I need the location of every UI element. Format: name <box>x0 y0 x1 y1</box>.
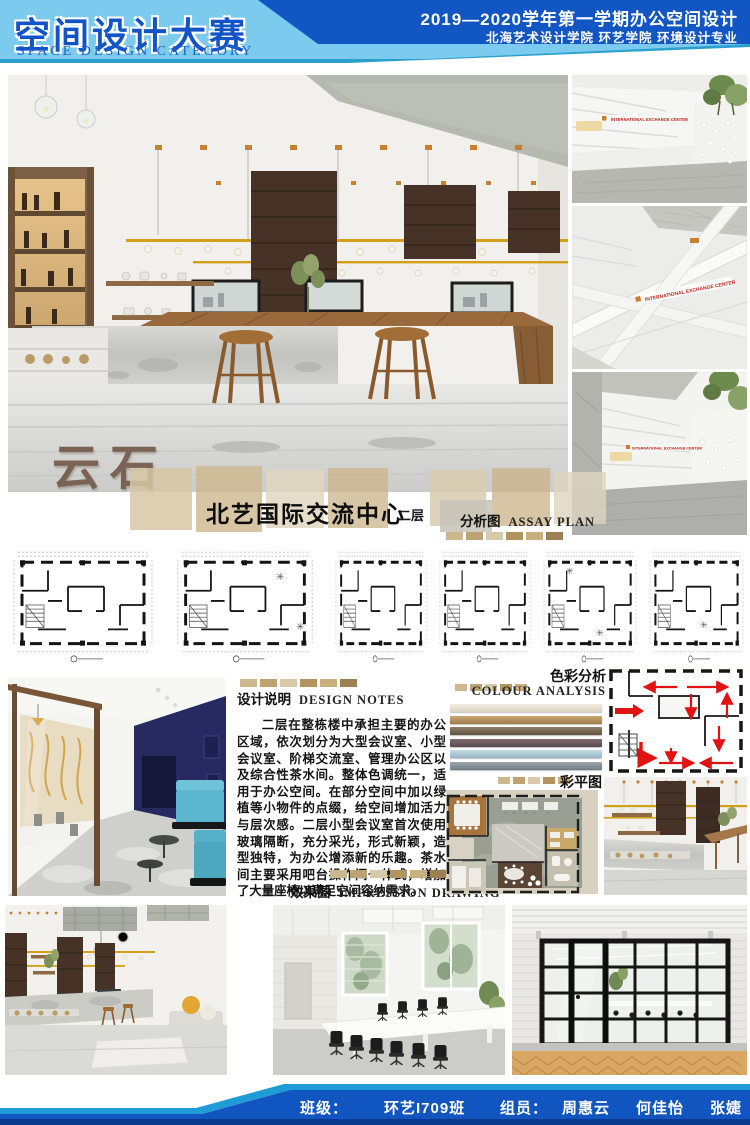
colour-floor-plan <box>446 790 598 894</box>
swatch-strip <box>446 532 563 540</box>
decor-square <box>130 468 192 530</box>
floor-plan-3 <box>332 546 430 666</box>
floor-plan-4 <box>436 546 534 666</box>
snowflake-symbol: ✳ <box>296 622 304 633</box>
swatch <box>330 870 347 878</box>
floor-plan-5 <box>540 546 640 666</box>
snowflake-symbol: ✳ <box>566 566 574 577</box>
swatch <box>370 870 387 878</box>
assay-plan-label: 分析图 ASSAY PLAN <box>460 510 595 530</box>
class-value: 环艺I709班 <box>384 1097 465 1118</box>
snowflake-symbol: ✳ <box>276 572 284 583</box>
swatch <box>466 532 483 540</box>
poster: 空间设计大赛 SPACE DESIGN CATEGORY 2019—2020学年… <box>0 0 750 1125</box>
swatch <box>350 870 367 878</box>
model-render-1: INTERNATIONAL EXCHANGE CENTER <box>572 75 747 203</box>
school-line: 北海艺术设计学院 环艺学院 环境设计专业 <box>486 27 738 46</box>
swatch-strip <box>240 679 357 687</box>
notes-label-en: DESIGN NOTES <box>299 693 404 708</box>
swatch <box>260 679 277 687</box>
svg-text:INTERNATIONAL EXCHANGE CENTER: INTERNATIONAL EXCHANGE CENTER <box>632 447 702 451</box>
notes-label-cn: 设计说明 <box>237 688 291 708</box>
snowflake-symbol: ✳ <box>596 628 604 639</box>
snowflake-symbol: ✳ <box>700 620 708 631</box>
poster-subtitle: SPACE DESIGN CATEGORY <box>17 44 255 60</box>
impression-render-2 <box>273 905 505 1075</box>
colour-bar <box>450 739 602 747</box>
swatch <box>546 532 563 540</box>
swatch <box>526 532 543 540</box>
swatch-strip <box>330 870 447 878</box>
model-render-2: INTERNATIONAL EXCHANGE CENTER <box>572 206 747 369</box>
colour-analysis-label-cn: 色彩分析 <box>452 666 606 686</box>
member-name: 张婕 <box>710 1097 742 1118</box>
swatch <box>300 679 317 687</box>
assay-label-cn: 分析图 <box>460 510 501 530</box>
circulation-plan <box>607 666 745 776</box>
swatch <box>506 532 523 540</box>
swatch <box>280 679 297 687</box>
impression-label-cn: 效果图 <box>290 881 331 901</box>
colour-bar <box>450 750 602 758</box>
swatch <box>498 777 510 784</box>
swatch <box>513 777 525 784</box>
swatch <box>410 870 427 878</box>
floor-plan-6 <box>646 546 747 666</box>
colour-bar <box>450 762 602 770</box>
impression-render-3 <box>512 905 747 1075</box>
project-caption: 北艺国际交流中心 <box>206 495 406 529</box>
assay-label-en: ASSAY PLAN <box>509 515 596 530</box>
colour-plan-label: 彩平图 <box>560 772 602 792</box>
class-label: 班级： <box>300 1097 348 1118</box>
colour-bar <box>450 716 602 724</box>
swatch <box>320 679 337 687</box>
team-label: 组员： <box>500 1097 548 1118</box>
colour-bar <box>450 727 602 735</box>
swatch <box>240 679 257 687</box>
swatch <box>528 777 540 784</box>
swatch <box>486 532 503 540</box>
colour-bars <box>450 704 602 770</box>
project-caption-floor: 二层 <box>398 505 424 524</box>
swatch <box>390 870 407 878</box>
swatch <box>543 777 555 784</box>
team-members: 周惠云何佳怡张婕 <box>562 1097 742 1118</box>
colour-analysis-label-en: COLOUR ANALYSIS <box>452 684 606 699</box>
corridor-photo <box>8 678 226 896</box>
member-name: 何佳怡 <box>636 1097 684 1118</box>
impression-render-1 <box>5 905 227 1075</box>
svg-text:INTERNATIONAL EXCHANGE CENTER: INTERNATIONAL EXCHANGE CENTER <box>611 117 688 122</box>
member-name: 周惠云 <box>562 1097 610 1118</box>
floor-plan-1 <box>8 546 158 666</box>
floor-plan-2 <box>172 546 318 666</box>
swatch <box>340 679 357 687</box>
colour-bar <box>450 704 602 712</box>
swatch <box>430 870 447 878</box>
design-notes-label: 设计说明 DESIGN NOTES <box>237 688 404 708</box>
swatch <box>446 532 463 540</box>
tearoom-render <box>604 777 747 895</box>
